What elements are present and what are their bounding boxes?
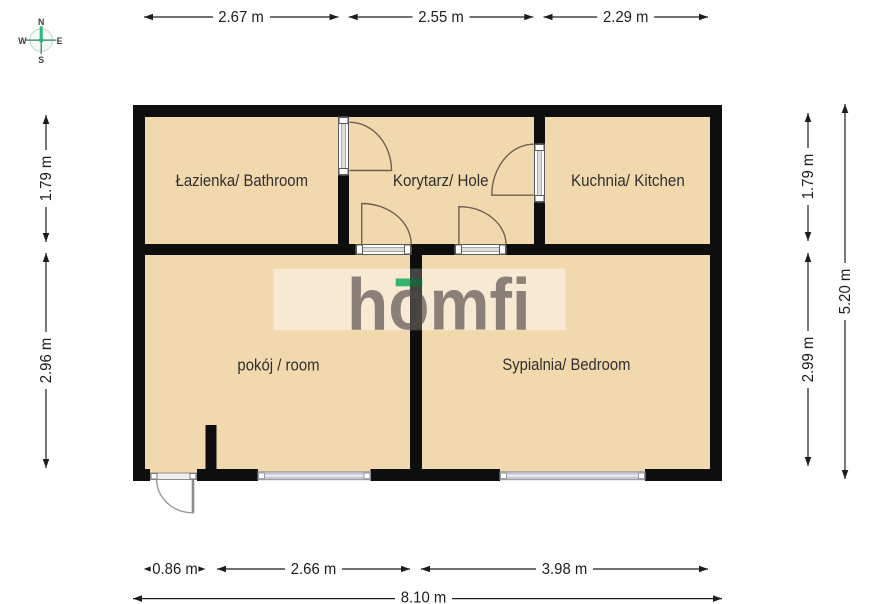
- svg-text:S: S: [38, 55, 44, 65]
- svg-text:pokój / room: pokój / room: [237, 355, 319, 374]
- svg-text:Kuchnia/ Kitchen: Kuchnia/ Kitchen: [571, 171, 685, 190]
- svg-text:2.29 m: 2.29 m: [603, 9, 649, 26]
- svg-text:2.96 m: 2.96 m: [38, 338, 55, 384]
- svg-text:2.55 m: 2.55 m: [418, 9, 464, 26]
- svg-text:1.79 m: 1.79 m: [800, 154, 817, 200]
- svg-text:Łazienka/ Bathroom: Łazienka/ Bathroom: [176, 171, 308, 190]
- svg-text:3.98 m: 3.98 m: [542, 561, 588, 578]
- svg-text:W: W: [18, 36, 27, 46]
- svg-text:2.66 m: 2.66 m: [291, 561, 337, 578]
- svg-text:Korytarz/ Hole: Korytarz/ Hole: [393, 171, 489, 190]
- svg-text:homfi: homfi: [347, 263, 531, 345]
- svg-text:1.79 m: 1.79 m: [38, 156, 55, 202]
- svg-text:N: N: [38, 17, 44, 27]
- svg-text:Sypialnia/ Bedroom: Sypialnia/ Bedroom: [502, 355, 630, 374]
- svg-text:2.67 m: 2.67 m: [218, 9, 264, 26]
- svg-text:8.10 m: 8.10 m: [401, 590, 447, 604]
- svg-text:0.86 m: 0.86 m: [152, 561, 198, 578]
- svg-text:E: E: [57, 36, 63, 46]
- svg-text:5.20 m: 5.20 m: [837, 269, 854, 315]
- svg-text:2.99 m: 2.99 m: [800, 337, 817, 383]
